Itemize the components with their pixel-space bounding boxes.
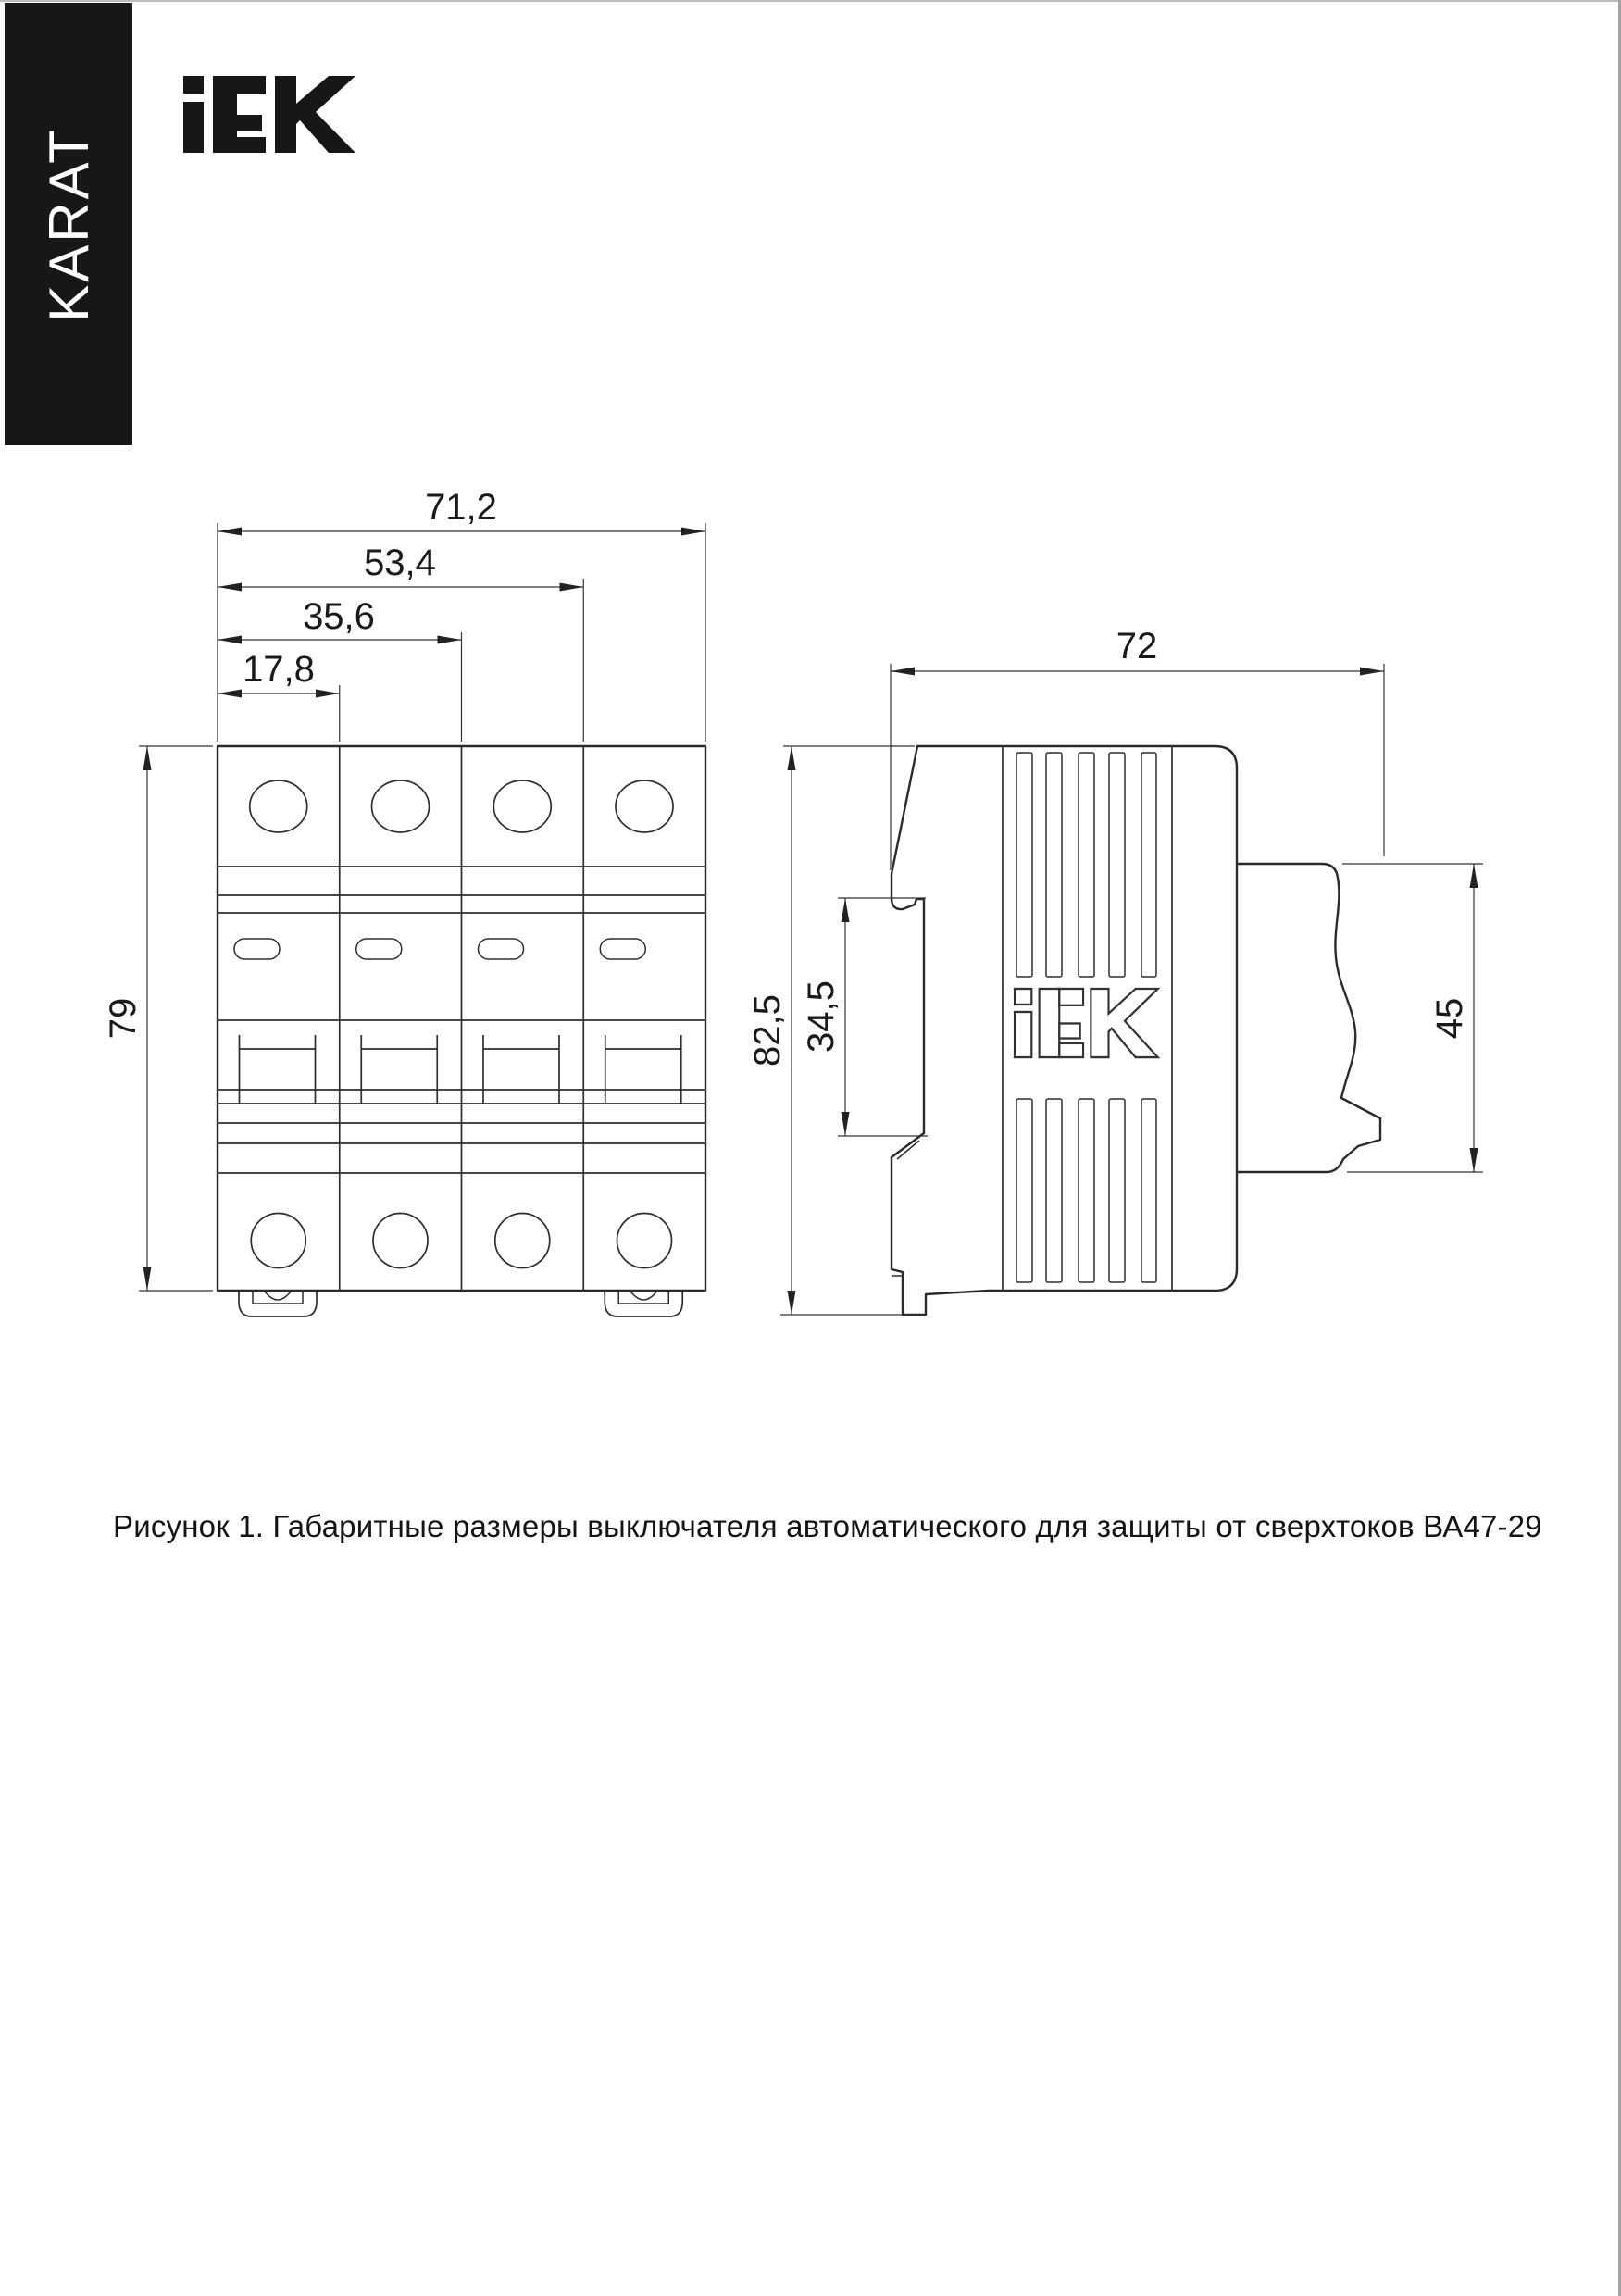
front-view: [218, 746, 705, 1316]
dim-front-width-1mod: 17,8: [243, 649, 315, 690]
document-page: KARAT: [0, 0, 1621, 2296]
iek-logo: [183, 76, 355, 153]
figure-caption: Рисунок 1. Габаритные размеры выключател…: [113, 1509, 1542, 1544]
dim-front-width-3mod: 53,4: [364, 543, 436, 583]
module-3: [479, 780, 560, 1268]
iek-logo-embossed: [1015, 989, 1158, 1057]
dim-side-height-total: 82,5: [747, 994, 788, 1067]
module-2: [356, 780, 438, 1268]
dim-side-din-groove: 34,5: [801, 980, 842, 1053]
vent-ribs-upper: [1016, 753, 1156, 977]
front-view-dimensions: 71,2 53,4 35,6 17,8 79: [103, 487, 705, 1291]
side-view: [892, 746, 1380, 1315]
dim-side-depth: 72: [1116, 626, 1158, 667]
side-body: [892, 746, 1237, 1315]
dim-front-width-total: 71,2: [425, 487, 497, 528]
technical-drawing: 71,2 53,4 35,6 17,8 79: [0, 0, 1621, 2296]
din-clip-right: [605, 1291, 682, 1316]
module-4: [600, 780, 681, 1268]
din-clip-left: [239, 1291, 317, 1316]
module-1: [234, 780, 316, 1268]
dim-front-height: 79: [103, 998, 143, 1040]
dim-front-width-2mod: 35,6: [303, 596, 375, 637]
side-front-face: [1237, 864, 1380, 1172]
dim-side-front-height: 45: [1429, 998, 1470, 1040]
vent-ribs-lower: [1016, 1099, 1156, 1282]
side-view-dimensions: 72 82,5 34,5 45: [747, 626, 1483, 1315]
